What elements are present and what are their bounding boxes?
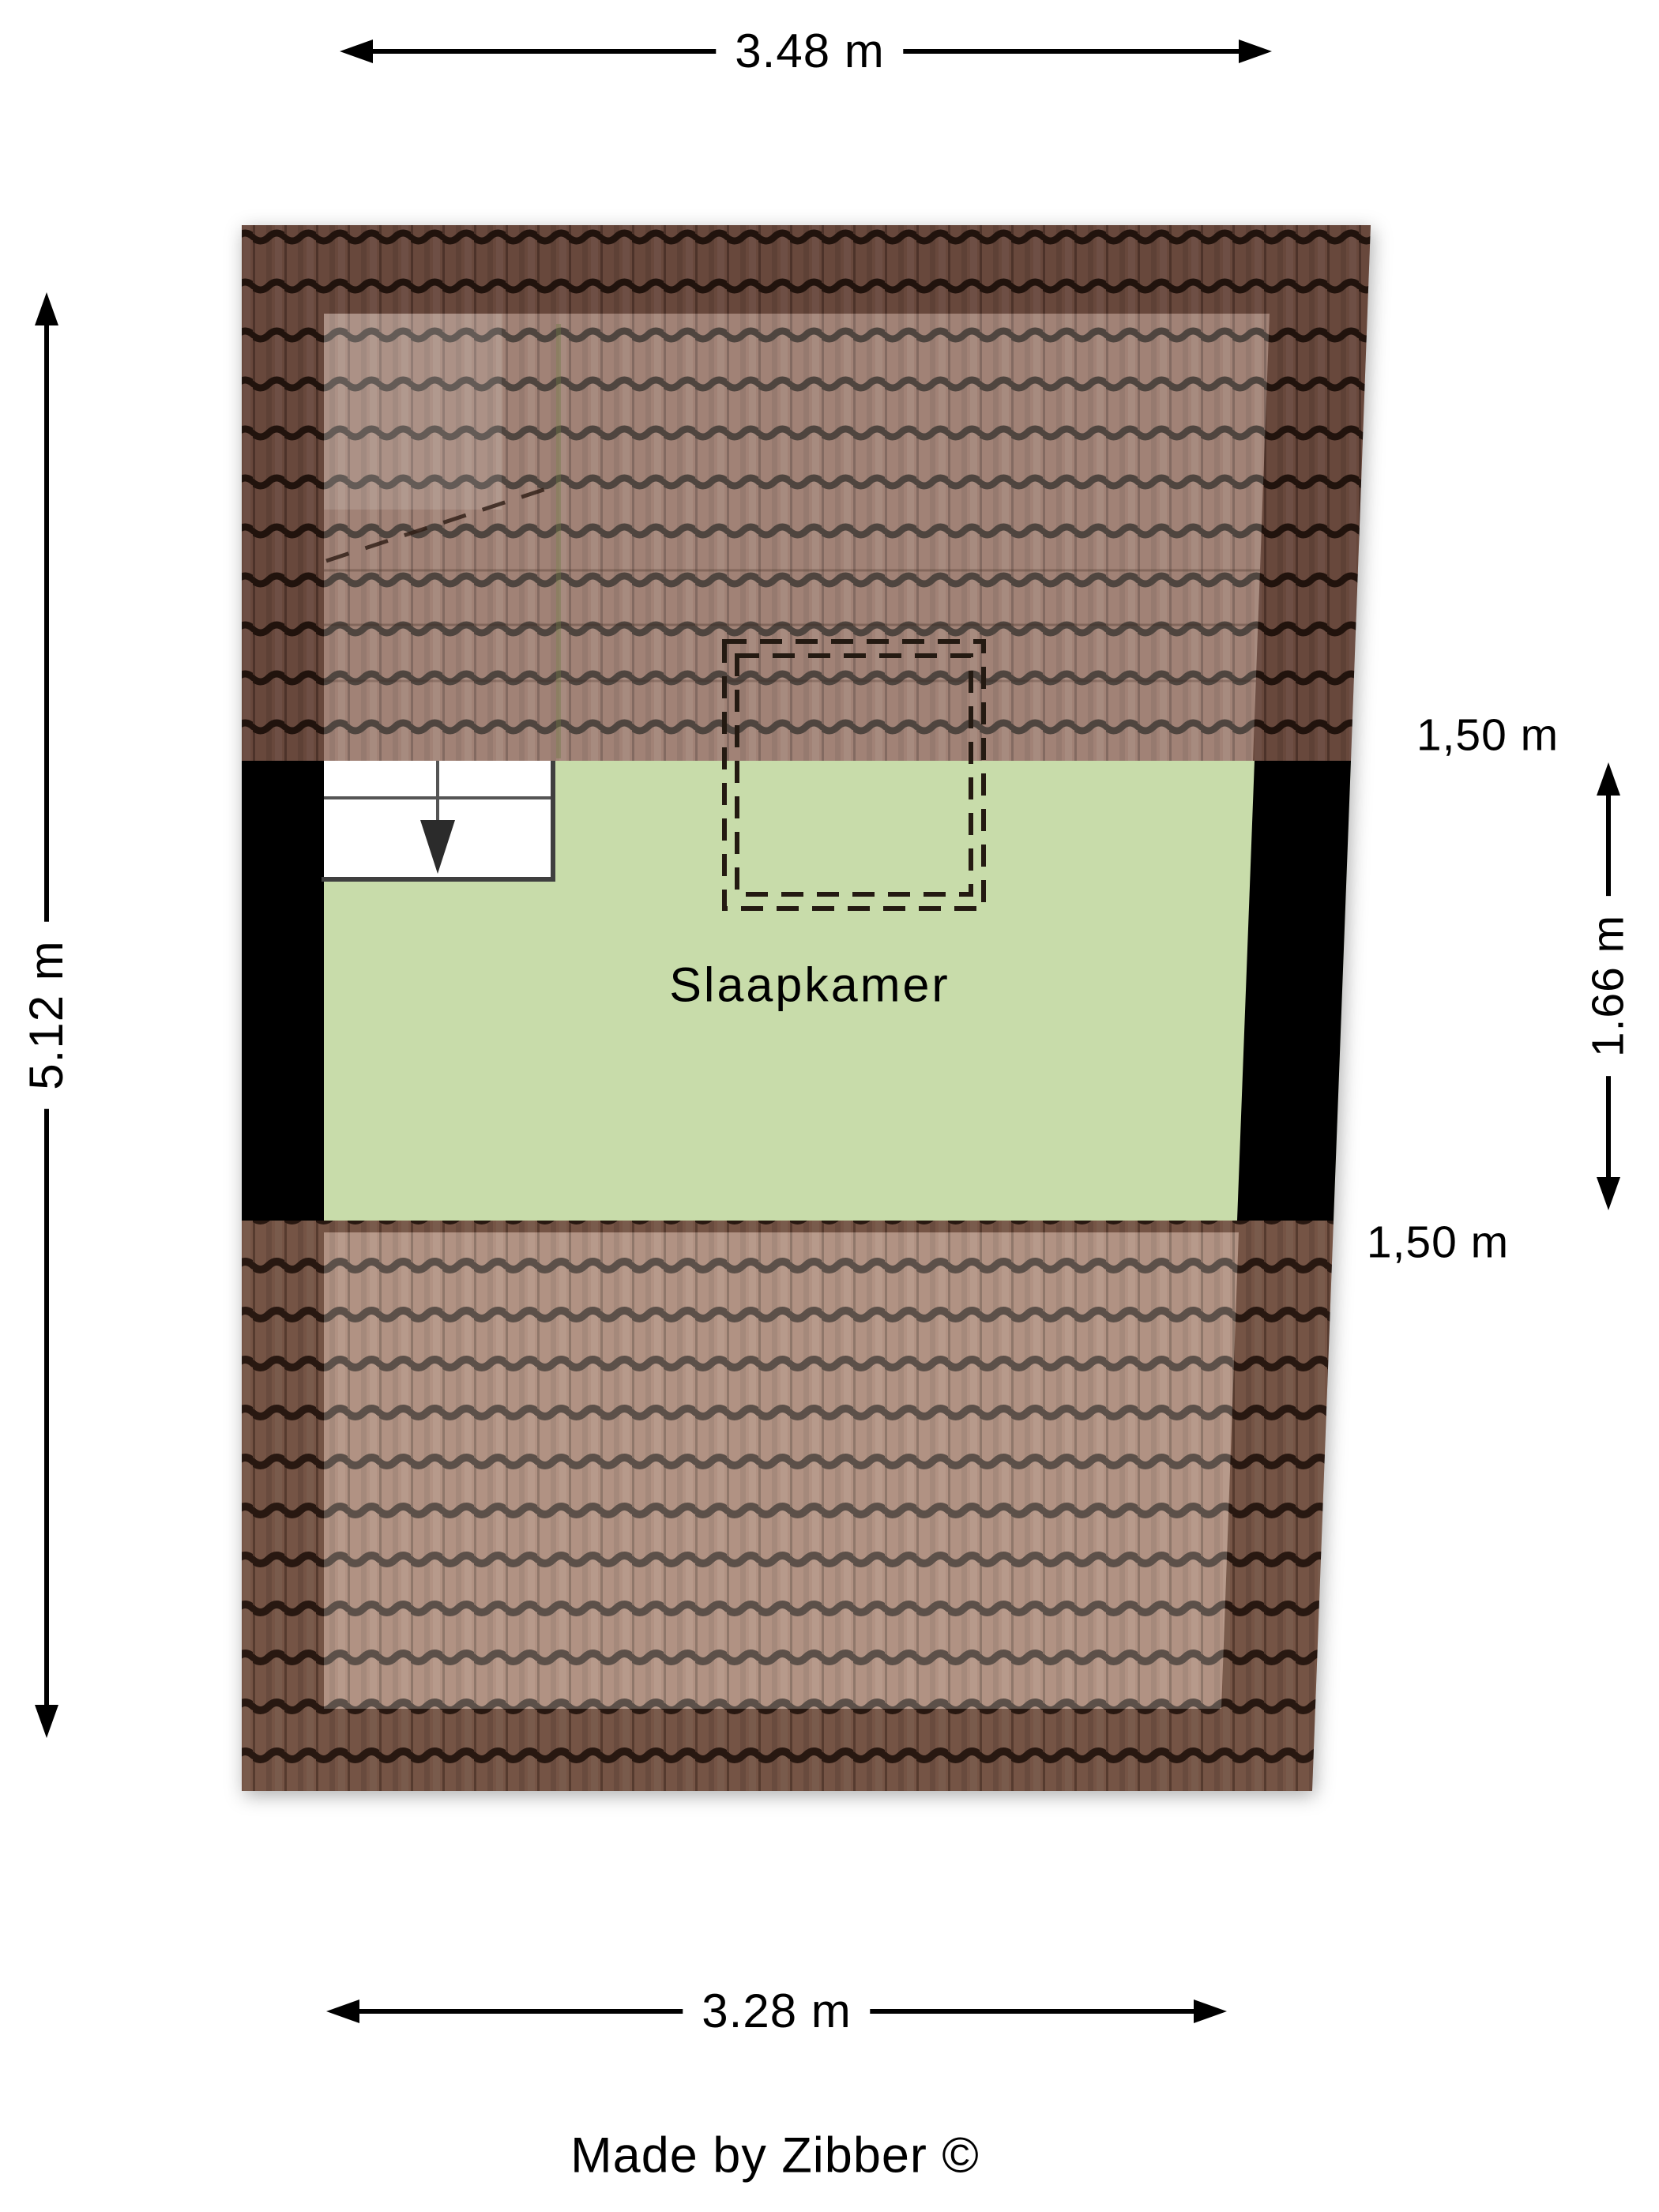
dimension-label-top-width: 3.48 m	[716, 24, 903, 78]
room-label: Slaapkamer	[669, 961, 950, 1010]
stairwell-ghost-area	[324, 314, 502, 510]
wall-left	[242, 761, 324, 1221]
floorplan-canvas	[0, 0, 1659, 2212]
dimension-label-left-height: 5.12 m	[20, 921, 73, 1108]
roof-bottom-inset-highlight	[324, 1232, 1239, 1709]
credit-text: Made by Zibber ©	[570, 2131, 980, 2181]
wall-right	[1237, 761, 1351, 1221]
stairs	[322, 761, 555, 882]
dimension-label-right-knee-bottom: 1,50 m	[1367, 1221, 1509, 1266]
dimension-label-right-height: 1.66 m	[1583, 896, 1635, 1076]
floorplan-page: 3.48 m 5.12 m 1,50 m 1.66 m 1,50 m 3.28 …	[0, 0, 1659, 2212]
dimension-label-right-knee-top: 1,50 m	[1416, 713, 1559, 758]
dimension-label-bottom-width: 3.28 m	[683, 1984, 870, 2038]
